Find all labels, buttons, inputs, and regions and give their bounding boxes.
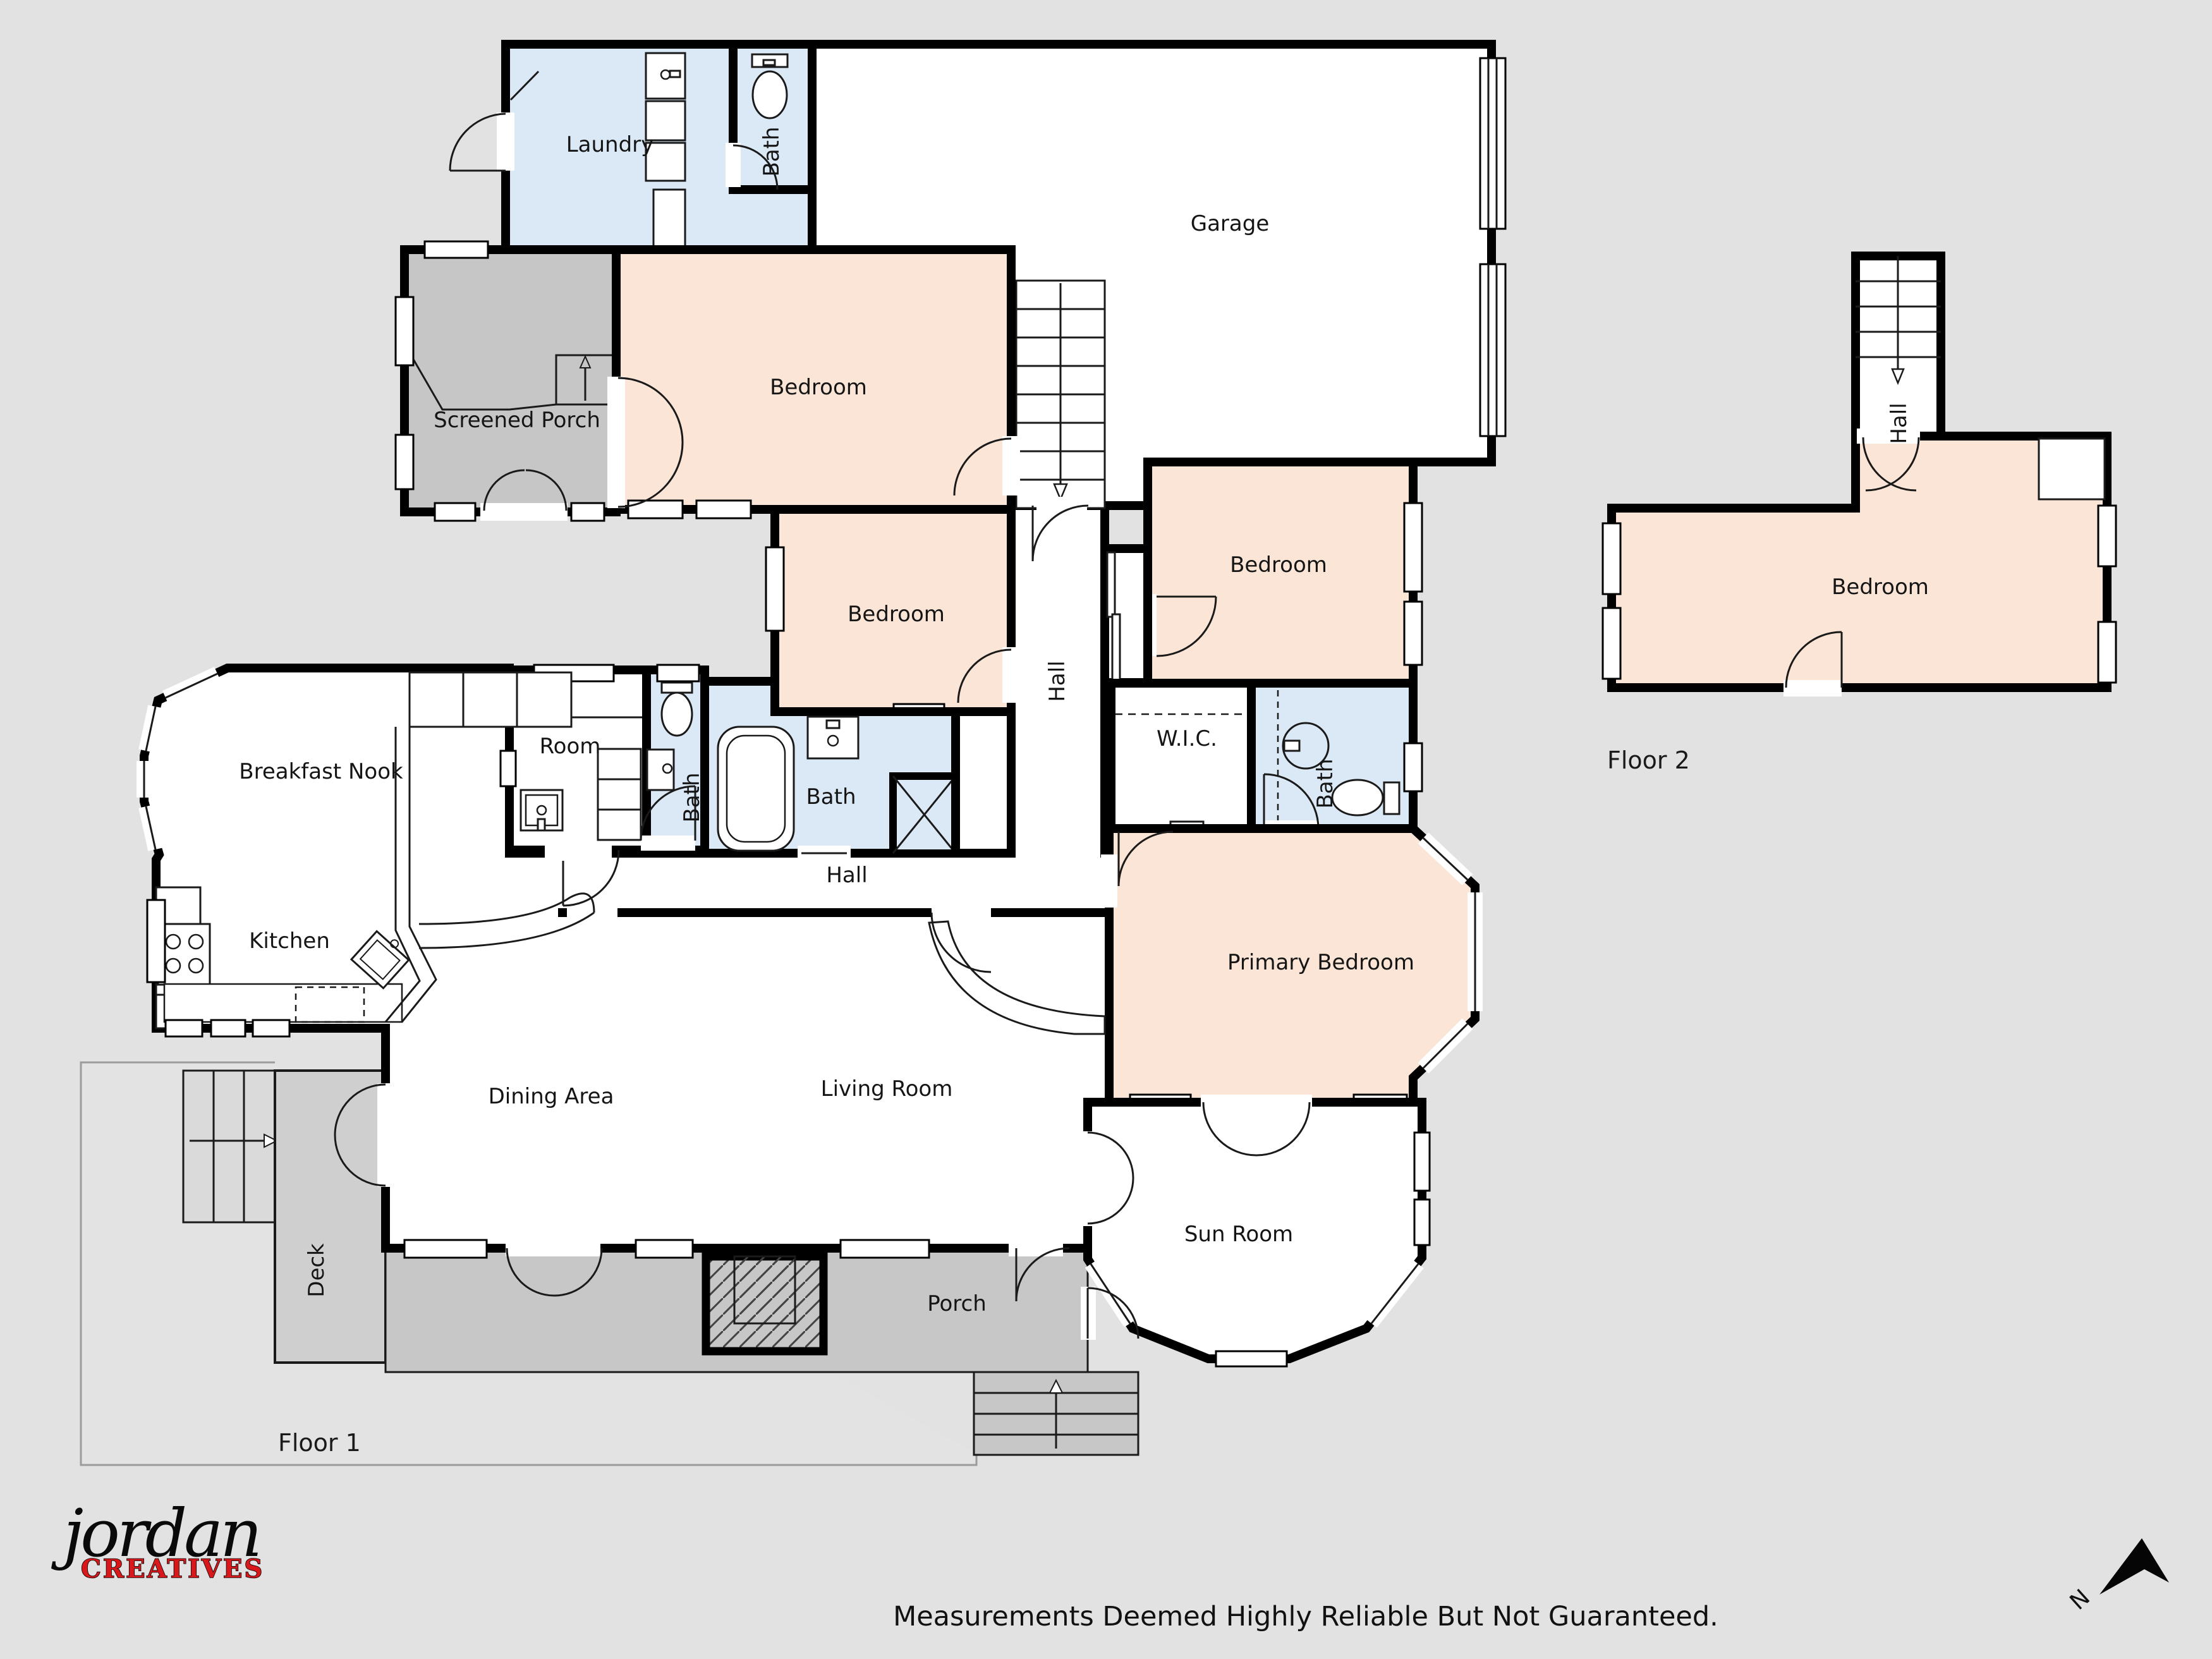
label-garage: Garage — [1191, 211, 1270, 236]
north-arrow-icon — [2100, 1538, 2169, 1595]
label-bath-primary: Bath — [1313, 758, 1338, 808]
label-primary-bedroom: Primary Bedroom — [1227, 950, 1414, 975]
screened-porch-room — [396, 241, 616, 521]
floor1-title: Floor 1 — [278, 1429, 361, 1457]
hall-linen-closet — [956, 712, 1011, 853]
label-sun-room: Sun Room — [1184, 1222, 1293, 1247]
north-arrow: N — [2065, 1538, 2169, 1615]
label-deck: Deck — [304, 1243, 329, 1297]
floor2-bedroom — [1603, 428, 2116, 696]
hall-closet — [1105, 549, 1148, 683]
floor2-title: Floor 2 — [1607, 746, 1690, 774]
floor2-unit — [1603, 256, 2116, 696]
shower-closet — [893, 776, 956, 853]
label-bath-hall: Bath — [806, 784, 856, 810]
logo-tagline: CREATIVES — [81, 1554, 264, 1584]
label-screened-porch: Screened Porch — [434, 408, 600, 433]
disclaimer-text: Measurements Deemed Highly Reliable But … — [893, 1601, 1718, 1632]
fireplace-icon — [706, 1256, 823, 1351]
label-hall: Hall — [826, 863, 867, 888]
label-breakfast-nook: Breakfast Nook — [239, 759, 403, 784]
label-room: Room — [540, 734, 601, 759]
logo: jordan CREATIVES — [51, 1495, 264, 1584]
garage-stairs-icon — [1016, 281, 1105, 508]
label-living: Living Room — [821, 1076, 953, 1102]
label-bedroom-mid: Bedroom — [848, 602, 945, 627]
hall-south-wall — [558, 908, 1109, 917]
label-wic: W.I.C. — [1157, 726, 1217, 751]
label-laundry: Laundry — [566, 132, 654, 157]
label-floor2-bedroom: Bedroom — [1832, 574, 1929, 600]
floorplan-page: { "floor1": { "title": "Floor 1", "rooms… — [0, 0, 2212, 1659]
label-bedroom-e: Bedroom — [1230, 552, 1327, 578]
floorplan-canvas: Laundry Bath Garage Screened Porch Bedro… — [0, 0, 2212, 1659]
label-bedroom-nw: Bedroom — [770, 375, 867, 400]
label-dining: Dining Area — [489, 1084, 614, 1109]
label-laundry-bath: Bath — [759, 126, 784, 176]
label-bath-small: Bath — [679, 772, 705, 822]
label-hall-vertical: Hall — [1045, 660, 1070, 702]
north-label: N — [2065, 1584, 2095, 1615]
label-floor2-hall: Hall — [1887, 403, 1912, 444]
label-porch: Porch — [927, 1291, 987, 1316]
label-kitchen: Kitchen — [249, 928, 330, 954]
hall-north-opening — [545, 846, 595, 861]
wic-room — [1111, 683, 1251, 837]
